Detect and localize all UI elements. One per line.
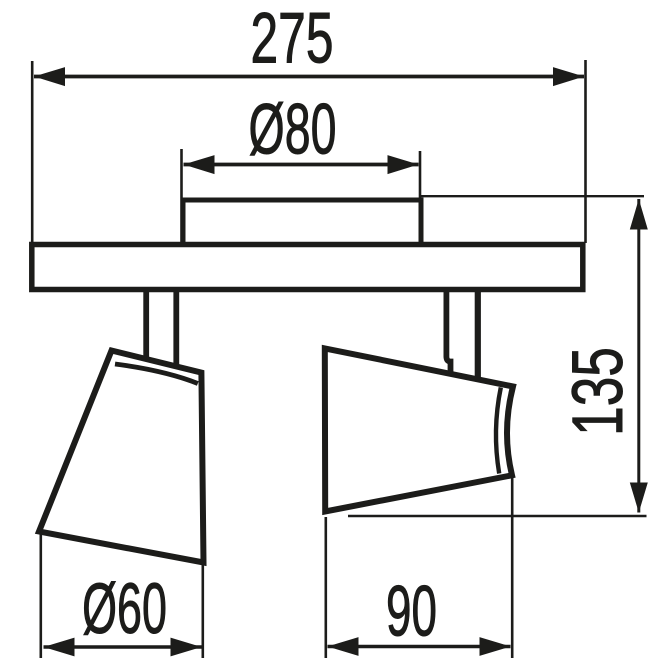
svg-text:Ø60: Ø60 [82,568,167,648]
svg-text:275: 275 [251,0,334,78]
svg-text:90: 90 [386,571,437,651]
svg-text:135: 135 [559,347,638,436]
svg-text:Ø80: Ø80 [249,90,337,169]
